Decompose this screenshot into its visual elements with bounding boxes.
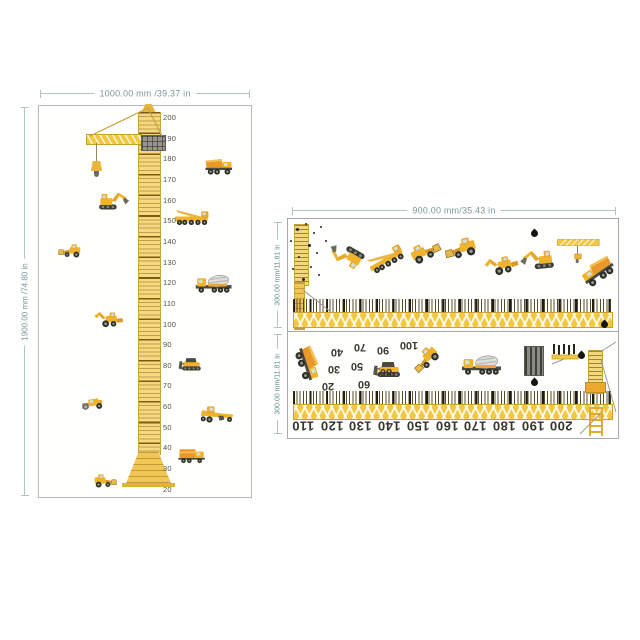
scatter-number: 60: [358, 378, 370, 390]
ruler-number: 170: [163, 175, 176, 184]
scatter-number: 20: [322, 380, 334, 392]
mixer-truck-icon: [459, 350, 507, 380]
scale-number: 110: [292, 419, 314, 434]
speck-dot: [292, 268, 294, 270]
sheet-width-dimension: 900.00 mm/35.43 in: [292, 210, 616, 211]
crane-cable: [96, 143, 97, 161]
ruler-number: 110: [163, 299, 176, 308]
speck-dot: [290, 240, 292, 242]
speck-dot: [308, 244, 311, 247]
crane-jib: [86, 134, 142, 145]
mixer-truck-icon: [193, 270, 237, 298]
ruler-number: 70: [163, 381, 172, 390]
speck-dot: [313, 232, 315, 234]
wheel-loader-icon: [88, 471, 119, 490]
scale-number: 120: [320, 419, 343, 434]
scatter-number: 30: [328, 363, 340, 375]
scatter-number: 70: [354, 341, 366, 353]
crane-hook-tip: [94, 171, 99, 177]
left-chart-height-dimension: 1900.00 mm /74.80 in: [24, 107, 25, 496]
ruler-number: 120: [163, 278, 176, 287]
ruler-number: 20: [163, 485, 172, 494]
truck-icon: [176, 444, 213, 467]
scale-number: 170: [464, 419, 487, 434]
tower-crane-cab: [585, 382, 606, 393]
speck-dot: [310, 266, 312, 268]
speck-dot: [305, 223, 307, 225]
scale-number: 200: [550, 419, 573, 434]
mast-ruler-icon: [294, 224, 309, 286]
dump-truck-icon: [202, 155, 239, 178]
ruler-number: 200: [163, 113, 176, 122]
crane-hook-icon: [91, 161, 102, 171]
speck-dot: [296, 228, 299, 231]
left-chart-width-dimension: 1000.00 mm /39.37 in: [40, 93, 250, 94]
ruler-number: 90: [163, 340, 172, 349]
speck-dot: [302, 278, 305, 281]
scatter-number: 50: [351, 360, 363, 372]
ruler-number: 140: [163, 237, 176, 246]
strip2-height-dimension: 300.00 mm/11.81 in: [277, 334, 278, 434]
ruler-number: 50: [163, 423, 172, 432]
strip1-tick-ruler: [293, 299, 611, 312]
strip2-height-label: 300.00 mm/11.81 in: [275, 348, 282, 419]
left-chart-width-label: 1000.00 mm /39.37 in: [94, 89, 195, 99]
radiator-grill-icon: [524, 346, 544, 376]
bulldozer-icon: [176, 354, 209, 375]
backhoe-icon: [91, 308, 127, 331]
scale-number: 150: [406, 419, 429, 434]
ruler-number: 100: [163, 320, 176, 329]
ruler-number: 130: [163, 258, 176, 267]
grader-icon: [197, 402, 237, 427]
ruler-number: 150: [163, 216, 176, 225]
scale-number: 140: [378, 419, 401, 434]
speck-dot: [320, 226, 322, 228]
scatter-number: 40: [331, 346, 343, 358]
scale-number: 190: [521, 419, 544, 434]
scatter-number: 90: [377, 344, 389, 356]
scatter-number: 100: [400, 339, 418, 351]
ladder-icon: [589, 407, 603, 436]
speck-dot: [318, 274, 320, 276]
left-chart-height-label: 1900.00 mm /74.80 in: [21, 258, 30, 345]
ruler-number: 180: [163, 154, 176, 163]
scale-number: 130: [349, 419, 372, 434]
strip2-tick-ruler: [293, 391, 611, 404]
strip1-height-dimension: 300.00 mm/11.81 in: [277, 222, 278, 328]
strip1-truss-ruler: [293, 312, 613, 328]
scale-number: 180: [492, 419, 515, 434]
wheel-loader-icon: [56, 241, 87, 260]
growth-chart-product-image: 1000.00 mm /39.37 in 1900.00 mm /74.80 i…: [0, 0, 640, 640]
ruler-number: 190: [163, 134, 176, 143]
crane-truck-icon: [171, 204, 213, 230]
tower-crane-ruler: [138, 112, 161, 455]
scatter-number: 80: [380, 366, 392, 378]
ruler-number: 30: [163, 464, 172, 473]
speck-dot: [298, 256, 300, 258]
speck-dot: [316, 252, 318, 254]
ruler-number: 160: [163, 196, 176, 205]
ruler-number: 40: [163, 443, 172, 452]
ruler-number: 80: [163, 361, 172, 370]
scale-number: 160: [435, 419, 458, 434]
excavator-icon: [91, 187, 131, 212]
sheet-width-label: 900.00 mm/35.43 in: [407, 206, 500, 216]
ruler-number: 60: [163, 402, 172, 411]
strip1-height-label: 300.00 mm/11.81 in: [275, 239, 282, 310]
speck-dot: [325, 240, 327, 242]
sheet-strip-divider: [287, 331, 618, 332]
